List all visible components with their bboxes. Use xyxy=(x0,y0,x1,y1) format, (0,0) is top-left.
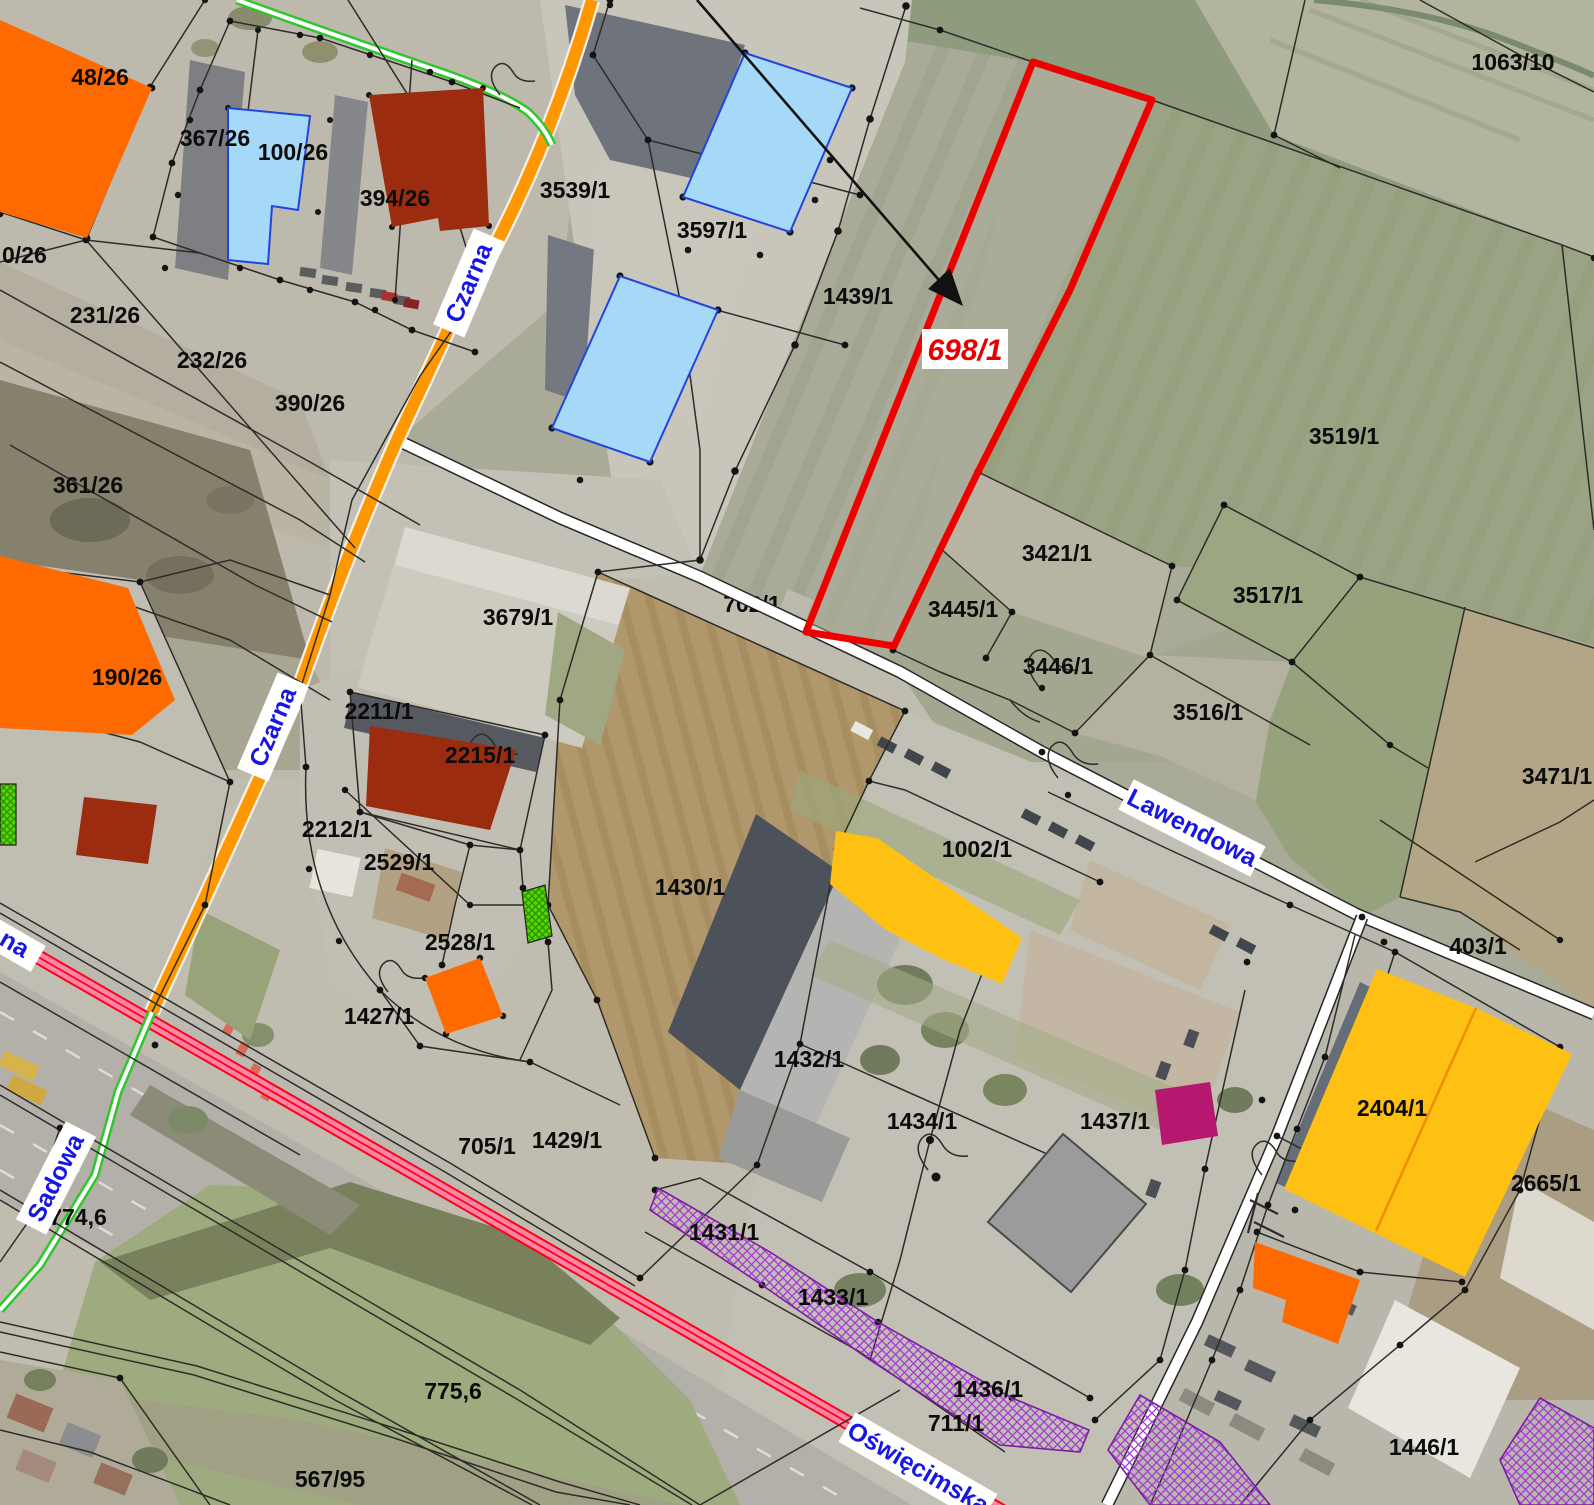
svg-text:100/26: 100/26 xyxy=(258,139,328,165)
svg-text:2528/1: 2528/1 xyxy=(425,929,496,955)
svg-text:1437/1: 1437/1 xyxy=(1080,1108,1151,1134)
svg-text:1434/1: 1434/1 xyxy=(887,1108,958,1134)
svg-text:1063/10: 1063/10 xyxy=(1471,49,1554,75)
svg-text:3445/1: 3445/1 xyxy=(928,596,999,622)
svg-text:3539/1: 3539/1 xyxy=(540,177,611,203)
svg-text:1446/1: 1446/1 xyxy=(1389,1434,1460,1460)
svg-text:2211/1: 2211/1 xyxy=(344,698,413,724)
svg-text:3446/1: 3446/1 xyxy=(1023,653,1094,679)
svg-text:3516/1: 3516/1 xyxy=(1173,699,1244,725)
svg-text:1433/1: 1433/1 xyxy=(798,1284,869,1310)
svg-text:2665/1: 2665/1 xyxy=(1511,1170,1582,1196)
svg-text:3679/1: 3679/1 xyxy=(483,604,554,630)
svg-text:3519/1: 3519/1 xyxy=(1309,423,1380,449)
svg-text:1439/1: 1439/1 xyxy=(823,283,894,309)
svg-text:403/1: 403/1 xyxy=(1449,933,1507,959)
svg-text:705/1: 705/1 xyxy=(458,1133,516,1159)
svg-text:2212/1: 2212/1 xyxy=(302,816,373,842)
svg-text:1427/1: 1427/1 xyxy=(344,1003,415,1029)
svg-text:232/26: 232/26 xyxy=(177,347,247,373)
svg-text:567/95: 567/95 xyxy=(295,1466,366,1492)
svg-text:361/26: 361/26 xyxy=(53,472,123,498)
svg-text:775,6: 775,6 xyxy=(424,1378,482,1404)
svg-text:1430/1: 1430/1 xyxy=(655,874,726,900)
svg-text:3421/1: 3421/1 xyxy=(1022,540,1093,566)
svg-text:367/26: 367/26 xyxy=(180,125,250,151)
svg-text:3597/1: 3597/1 xyxy=(677,217,748,243)
svg-text:394/26: 394/26 xyxy=(360,185,430,211)
svg-text:3471/1: 3471/1 xyxy=(1522,763,1593,789)
svg-text:1429/1: 1429/1 xyxy=(532,1127,603,1153)
svg-text:231/26: 231/26 xyxy=(70,302,140,328)
svg-text:2404/1: 2404/1 xyxy=(1357,1095,1428,1121)
svg-text:1431/1: 1431/1 xyxy=(689,1219,760,1245)
svg-text:1002/1: 1002/1 xyxy=(942,836,1013,862)
svg-text:48/26: 48/26 xyxy=(71,64,129,90)
svg-text:2529/1: 2529/1 xyxy=(364,849,435,875)
svg-text:390/26: 390/26 xyxy=(275,390,345,416)
svg-text:711/1: 711/1 xyxy=(928,1410,984,1436)
svg-text:1432/1: 1432/1 xyxy=(774,1046,845,1072)
svg-text:0/26: 0/26 xyxy=(2,242,47,268)
svg-text:2215/1: 2215/1 xyxy=(445,742,516,768)
svg-text:190/26: 190/26 xyxy=(92,664,162,690)
svg-text:698/1: 698/1 xyxy=(927,334,1002,367)
svg-text:1436/1: 1436/1 xyxy=(953,1376,1024,1402)
svg-text:3517/1: 3517/1 xyxy=(1233,582,1304,608)
